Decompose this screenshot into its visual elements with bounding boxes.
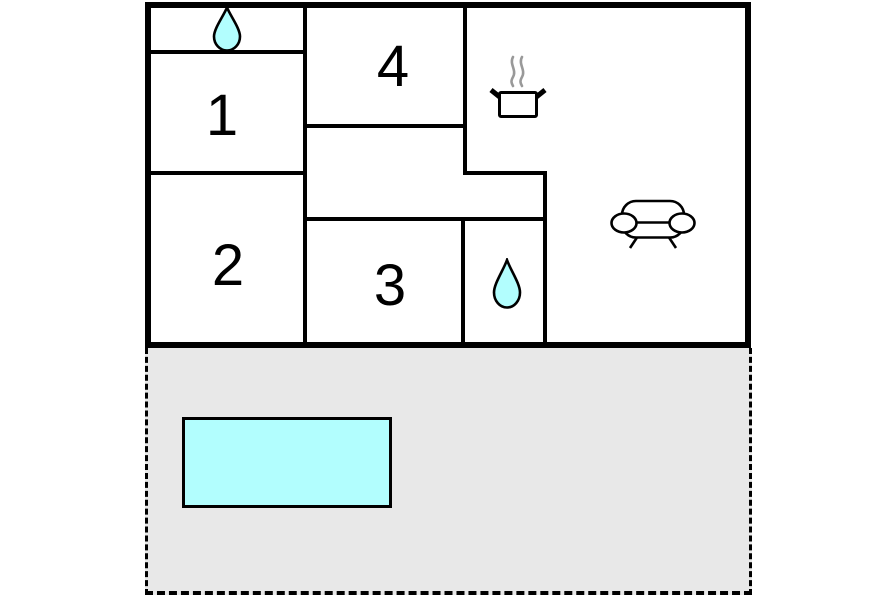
room-3-label: 3: [374, 257, 406, 315]
room-4-label: 4: [377, 38, 409, 96]
cooking-pot-icon: [489, 49, 547, 121]
sofa-icon: [610, 198, 696, 250]
floorplan-canvas: 1 2 3 4: [0, 0, 896, 597]
water-drop-icon: [491, 258, 523, 310]
room-2-label: 2: [212, 237, 244, 295]
wall-room4-right: [463, 8, 467, 175]
swimming-pool: [182, 417, 392, 508]
water-drop-icon: [211, 6, 243, 52]
wall-hall-bottom: [307, 217, 547, 221]
wall-livingroom-left: [543, 171, 547, 342]
wall-kitchen-step: [463, 171, 547, 175]
wall-room3-bath: [461, 221, 465, 342]
wall-room4-bottom: [307, 124, 467, 128]
wall-room1-room2: [151, 171, 307, 175]
room-1-label: 1: [206, 87, 238, 145]
